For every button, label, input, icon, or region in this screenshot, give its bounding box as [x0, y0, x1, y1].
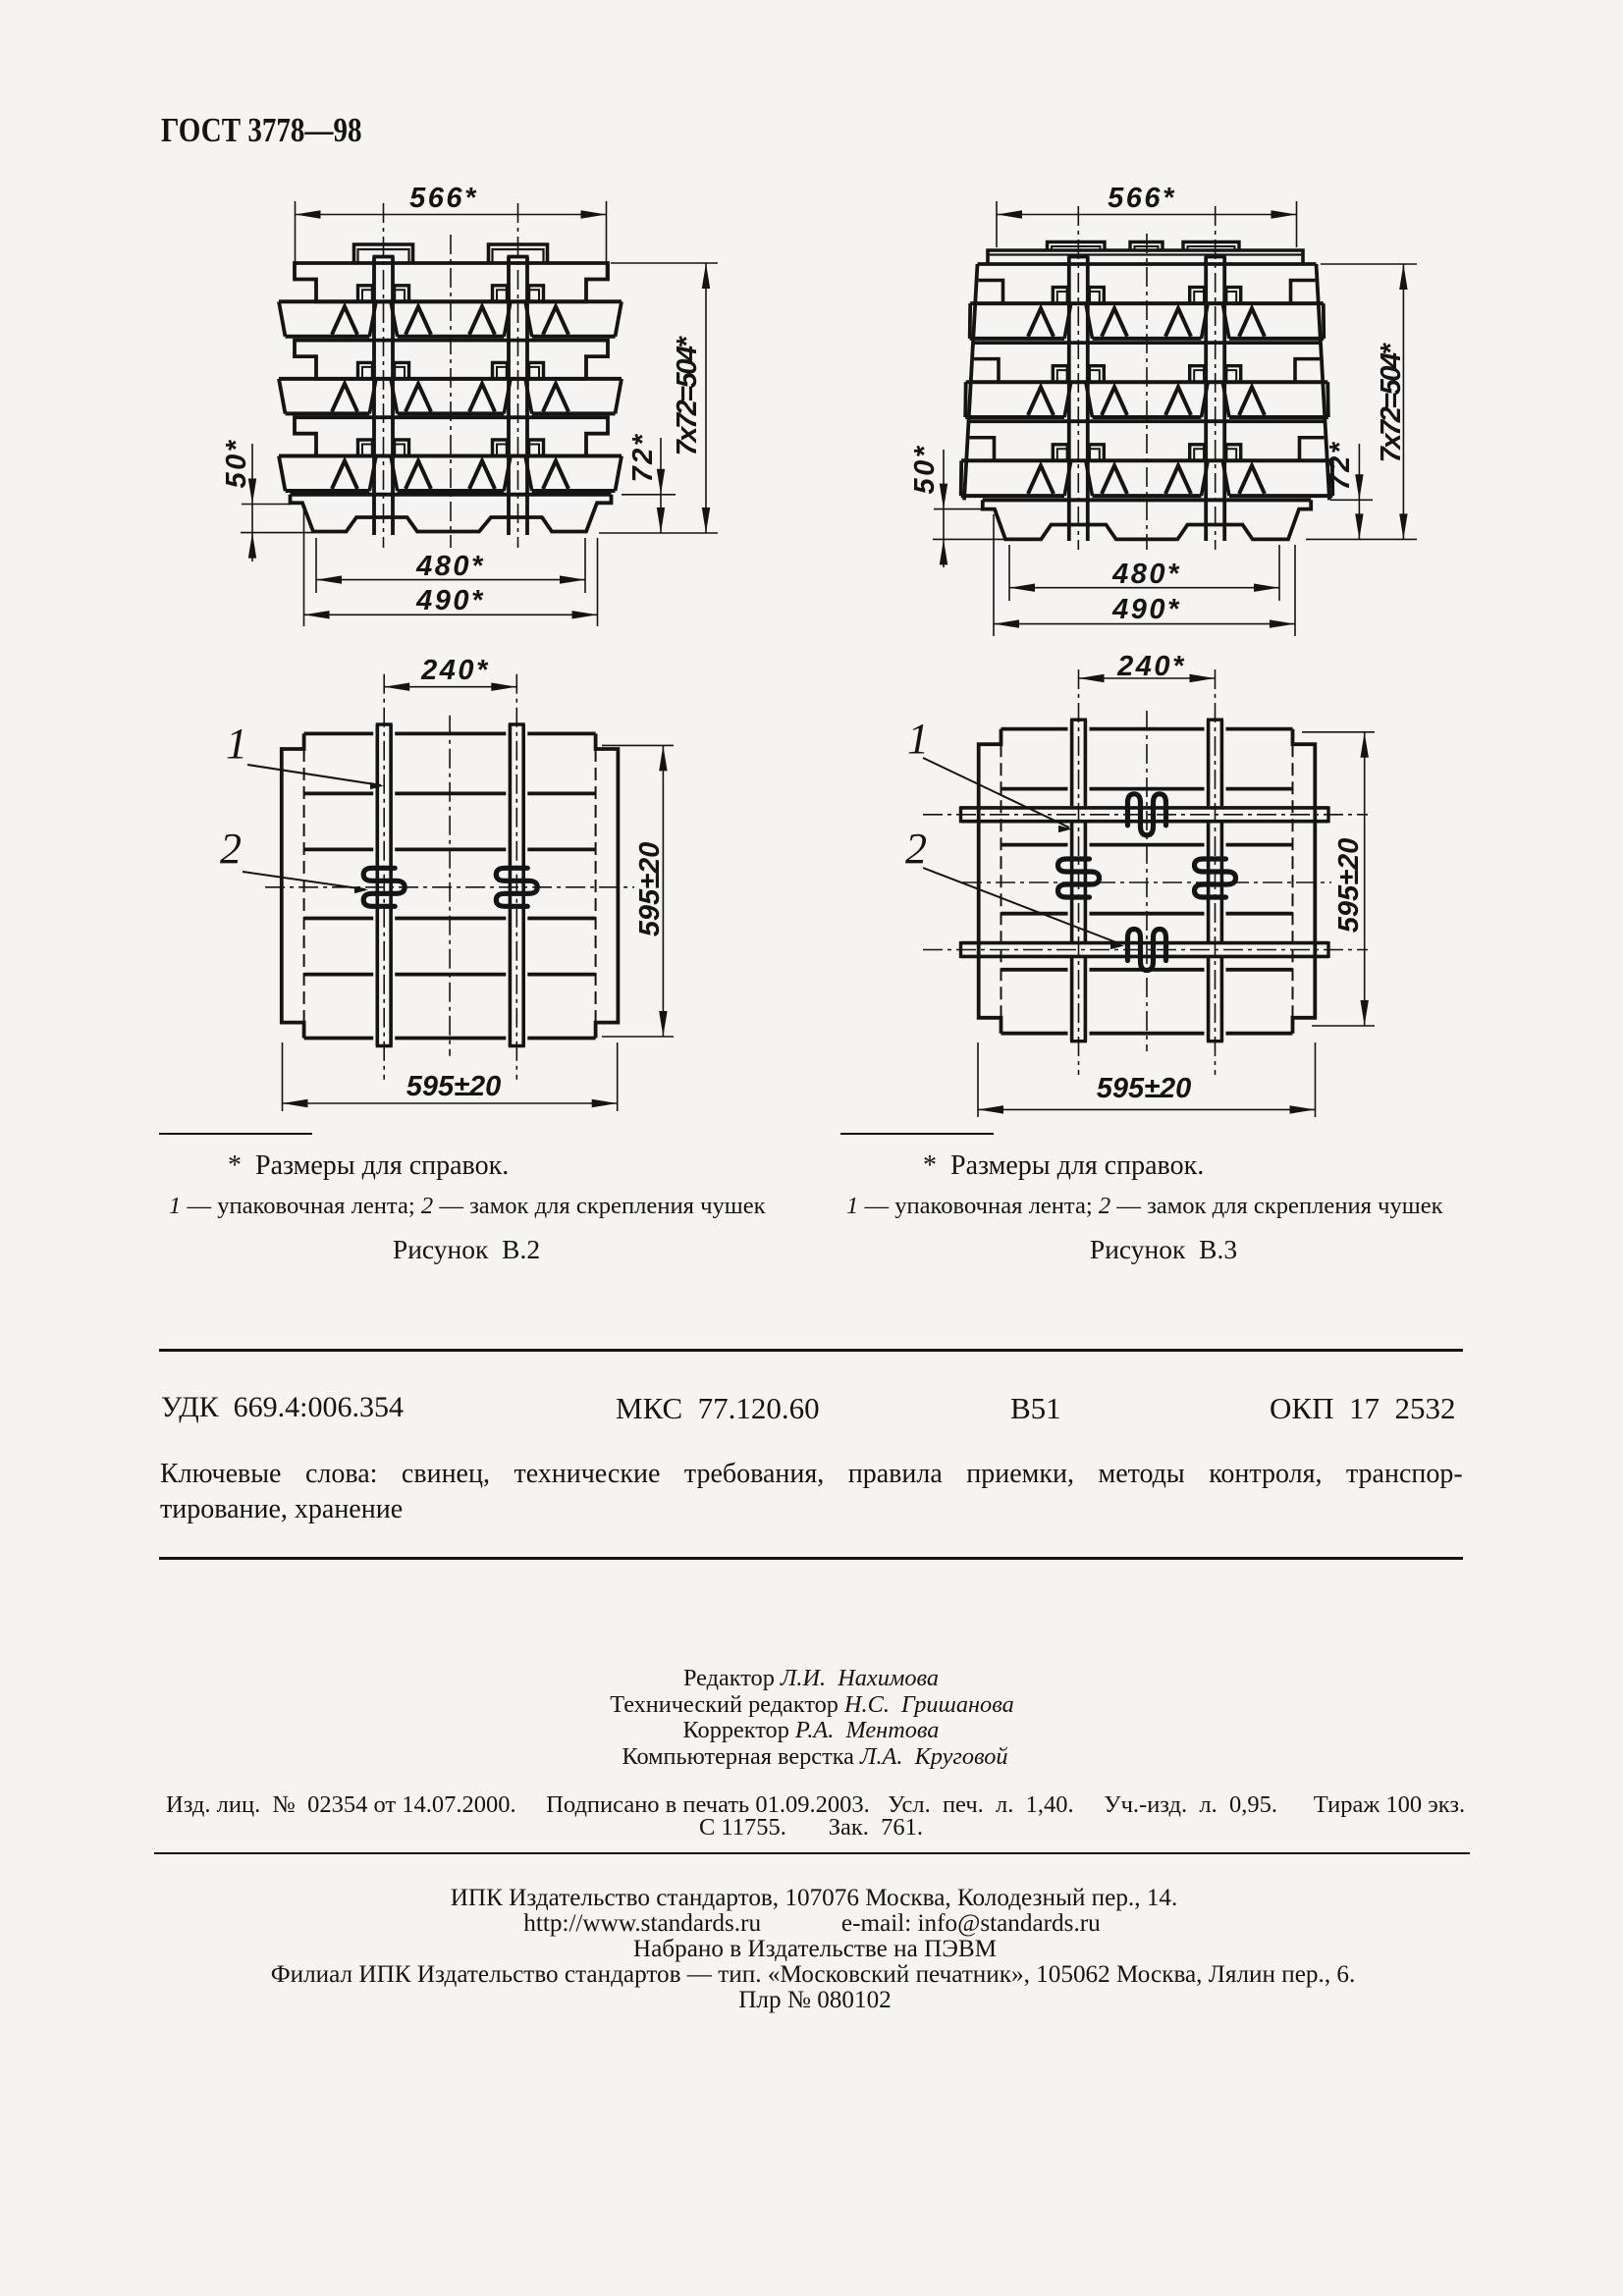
svg-text:490*: 490*	[415, 585, 485, 616]
svg-text:240*: 240*	[1116, 651, 1186, 682]
svg-text:490*: 490*	[1111, 594, 1181, 625]
svg-text:595±20: 595±20	[1333, 838, 1365, 934]
svg-text:595±20: 595±20	[634, 842, 666, 937]
svg-text:50*: 50*	[909, 444, 941, 494]
svg-text:72*: 72*	[1325, 440, 1356, 490]
svg-text:1: 1	[907, 715, 929, 763]
svg-text:2: 2	[905, 825, 927, 873]
svg-text:2: 2	[220, 825, 242, 873]
svg-text:240*: 240*	[420, 655, 490, 686]
svg-text:1: 1	[226, 720, 247, 768]
svg-text:595±20: 595±20	[1097, 1073, 1192, 1104]
svg-text:50*: 50*	[221, 438, 252, 488]
svg-text:72*: 72*	[627, 432, 659, 482]
svg-text:566*: 566*	[1108, 183, 1176, 214]
svg-text:7x72=504*: 7x72=504*	[672, 335, 703, 455]
svg-text:595±20: 595±20	[406, 1071, 502, 1102]
svg-text:7x72=504*: 7x72=504*	[1376, 342, 1407, 462]
svg-text:480*: 480*	[415, 551, 485, 582]
svg-text:480*: 480*	[1111, 559, 1181, 590]
svg-text:566*: 566*	[409, 183, 478, 214]
